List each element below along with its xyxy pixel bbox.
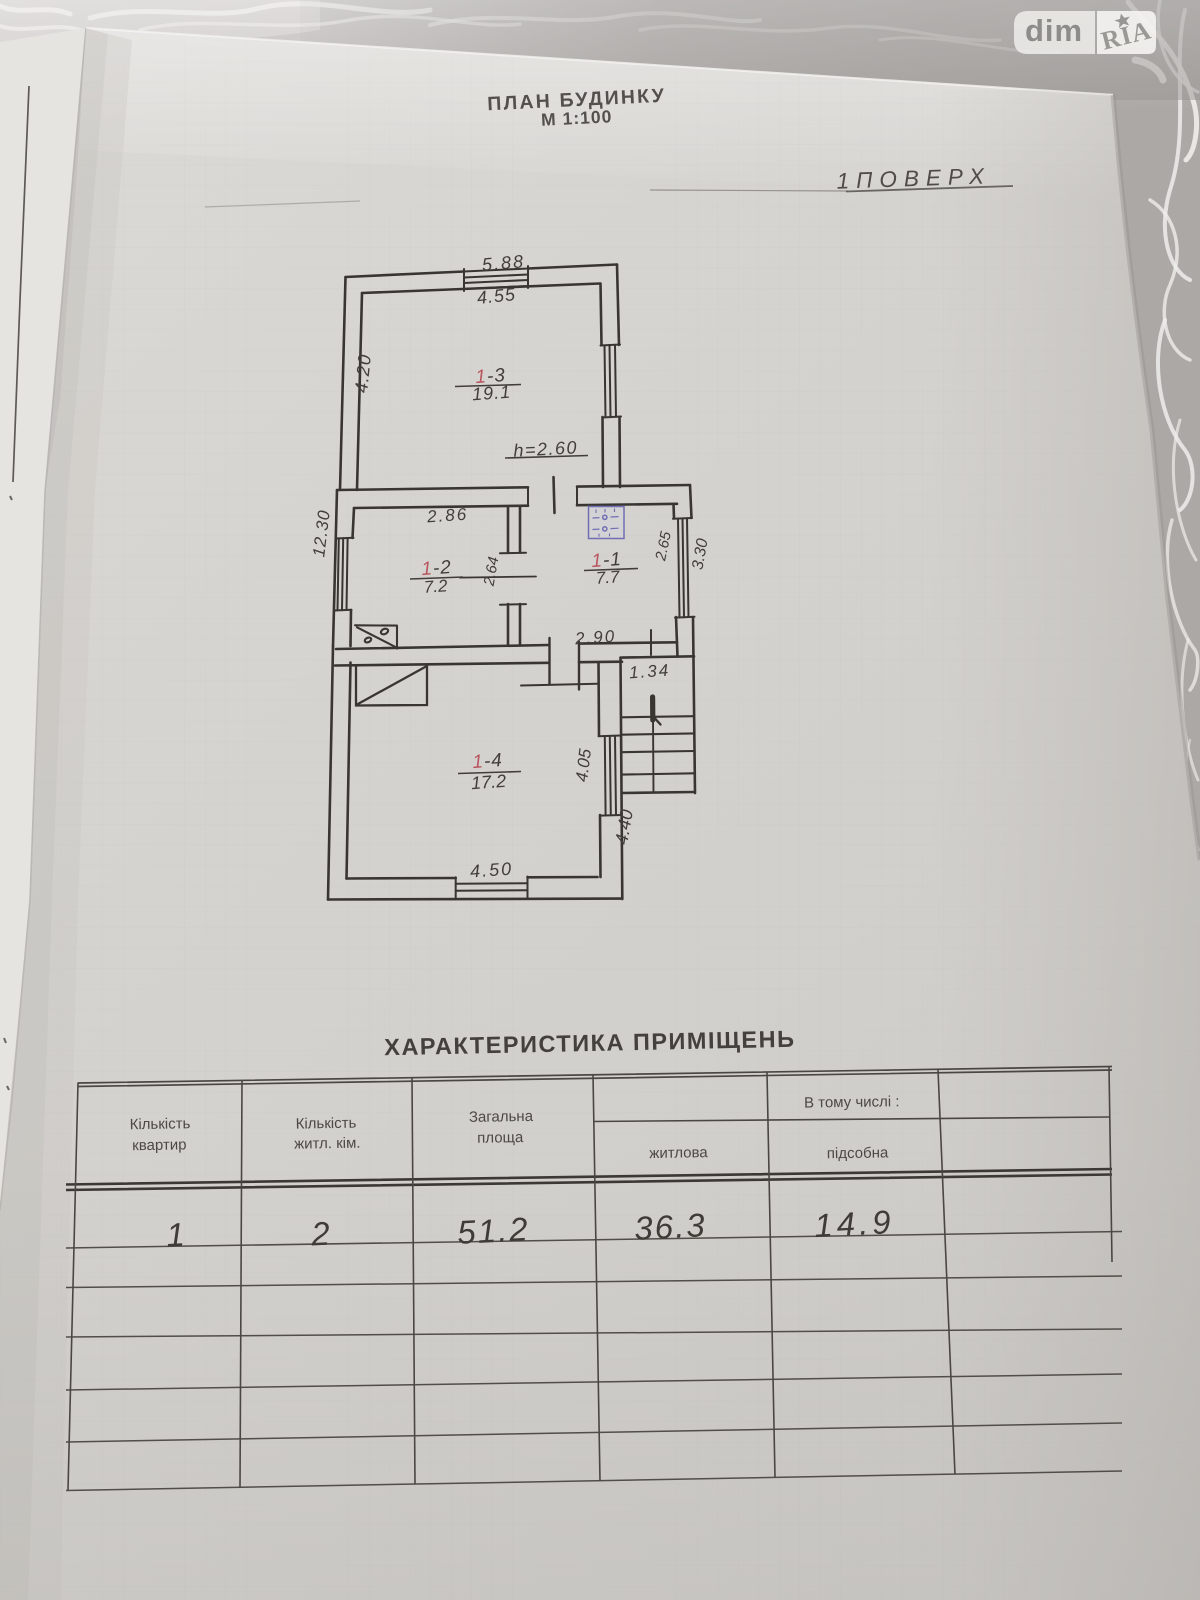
svg-text:житл. кім.: житл. кім. — [294, 1135, 361, 1153]
svg-text:1.34: 1.34 — [628, 661, 670, 683]
svg-text:5.88: 5.88 — [481, 251, 526, 275]
svg-text:4.55: 4.55 — [476, 284, 517, 308]
svg-text:7.2: 7.2 — [423, 576, 448, 597]
svg-text:2: 2 — [309, 1215, 330, 1253]
svg-text:2.86: 2.86 — [425, 505, 468, 527]
svg-text:Загальна: Загальна — [469, 1108, 534, 1126]
svg-text:М 1:100: М 1:100 — [541, 106, 613, 129]
svg-text:4.50: 4.50 — [469, 859, 513, 882]
svg-text:51.2: 51.2 — [456, 1210, 530, 1251]
svg-text:36.3: 36.3 — [633, 1206, 707, 1247]
svg-text:1: 1 — [165, 1216, 185, 1254]
svg-text:В тому числі :: В тому числі : — [804, 1093, 900, 1111]
svg-text:площа: площа — [477, 1129, 524, 1147]
svg-text:2.90: 2.90 — [573, 627, 616, 649]
svg-text:Кількість: Кількість — [130, 1115, 191, 1133]
svg-text:Кількість: Кількість — [296, 1115, 357, 1133]
svg-text:підсобна: підсобна — [827, 1144, 889, 1162]
svg-text:житлова: житлова — [649, 1144, 708, 1162]
svg-text:4.05: 4.05 — [572, 747, 595, 783]
svg-text:dim: dim — [1025, 13, 1083, 48]
svg-text:14.9: 14.9 — [813, 1203, 895, 1244]
svg-text:4.20: 4.20 — [351, 353, 375, 394]
svg-text:1-4: 1-4 — [472, 750, 504, 773]
svg-text:17.2: 17.2 — [470, 771, 506, 793]
svg-text:квартир: квартир — [132, 1136, 187, 1154]
